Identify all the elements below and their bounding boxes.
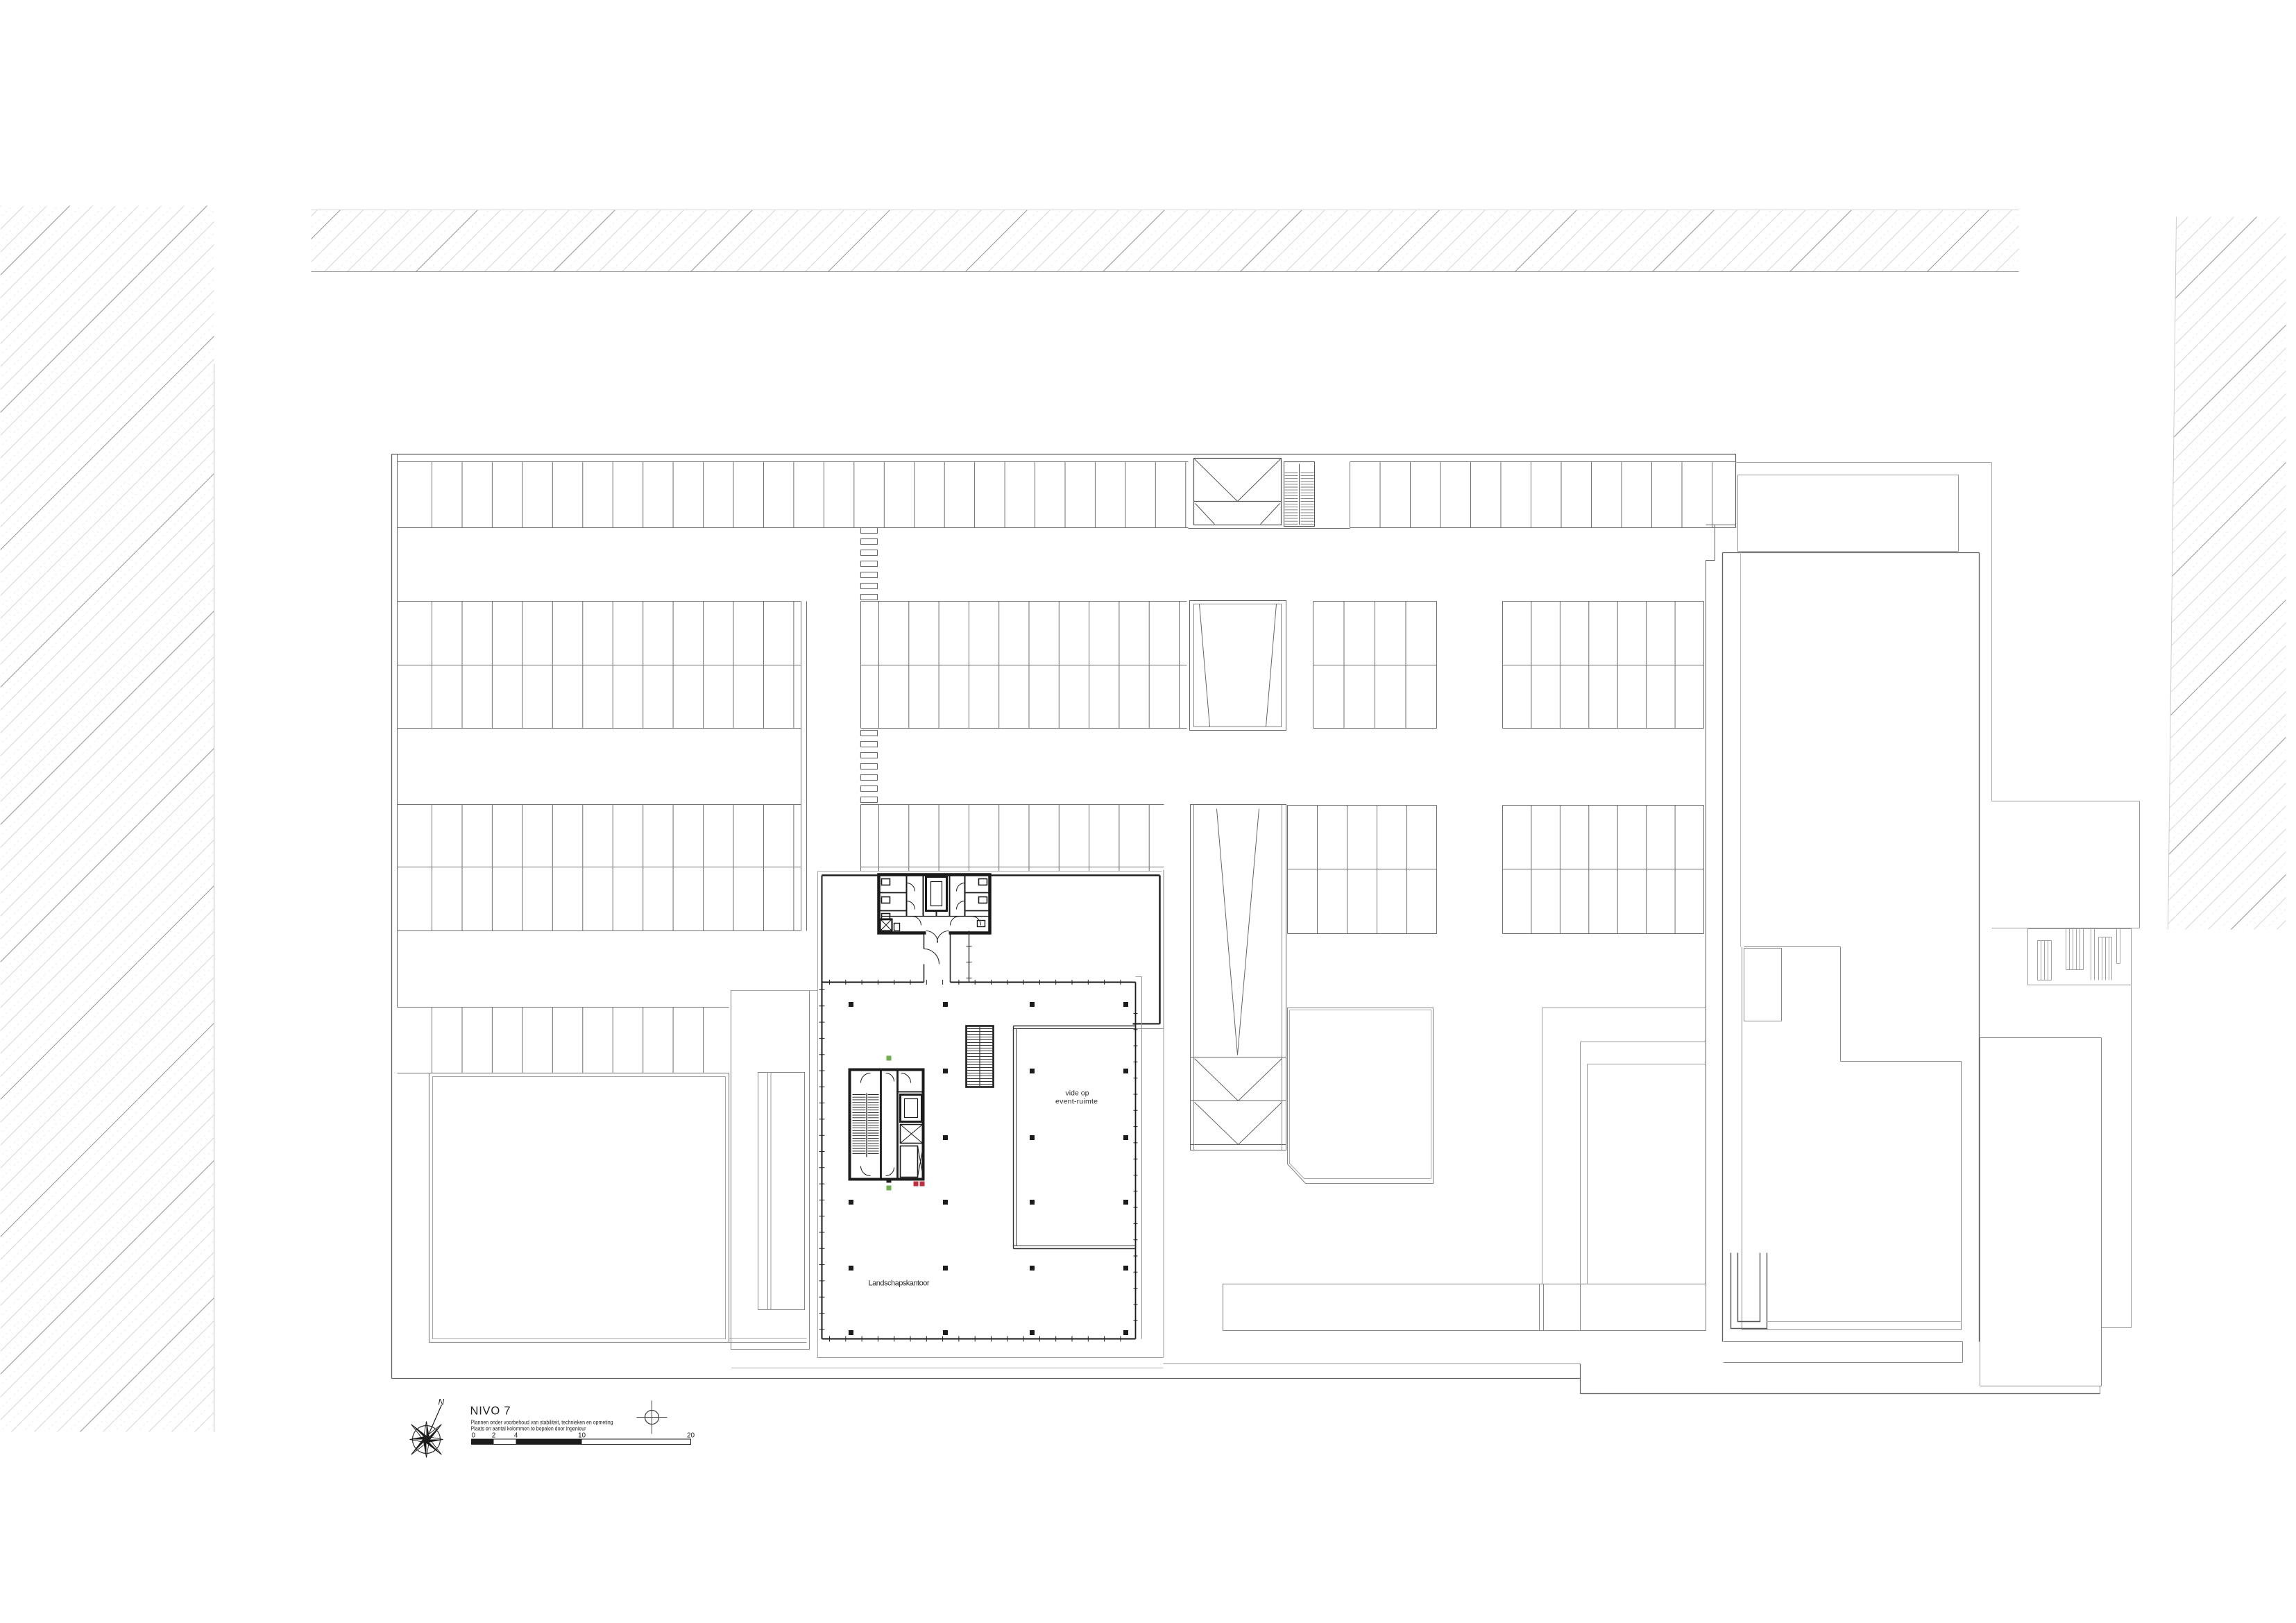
svg-text:4: 4 [514, 1432, 518, 1440]
svg-text:Plaats en aantal kolommen te b: Plaats en aantal kolommen te bepalen doo… [471, 1425, 586, 1432]
svg-text:NIVO 7: NIVO 7 [470, 1405, 511, 1418]
svg-text:10: 10 [578, 1432, 586, 1440]
svg-text:vide op: vide op [1066, 1089, 1089, 1098]
svg-text:2: 2 [492, 1432, 496, 1440]
svg-text:20: 20 [687, 1432, 695, 1440]
svg-text:Landschapskantoor: Landschapskantoor [869, 1280, 930, 1288]
svg-text:event-ruimte: event-ruimte [1055, 1098, 1098, 1106]
svg-text:0: 0 [472, 1432, 476, 1440]
svg-text:N: N [439, 1397, 445, 1407]
